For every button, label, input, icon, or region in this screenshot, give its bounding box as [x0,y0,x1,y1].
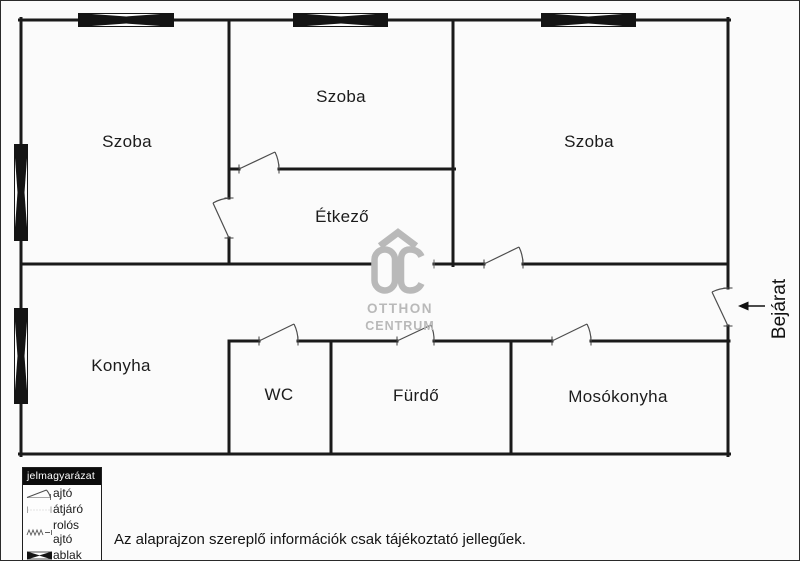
passage-icon [376,260,434,269]
roof-chevron-icon [380,233,416,247]
legend-item-roller-door: rolós ajtó [23,517,101,547]
room-label-szoba-middle: Szoba [316,87,366,107]
window-icon [14,308,28,404]
room-label-szoba-left: Szoba [102,132,152,152]
legend-title: jelmagyarázat [23,468,101,485]
legend-item-window: ablak [23,547,101,561]
legend-item-door: ajtó [23,485,101,501]
floorplan-drawing: OTTHON CENTRUM [1,1,800,561]
logo-line1: OTTHON [367,301,433,316]
door-swing-icon [239,152,279,169]
room-label-konyha: Konyha [91,356,150,376]
floorplan-canvas: OTTHON CENTRUM Szoba Szoba Szoba Étkező … [0,0,800,561]
door-swings [213,152,728,341]
legend-box: jelmagyarázat ajtó átjáró rolós ajtó [22,467,102,561]
door-jamb-ticks [225,165,733,346]
door-swing-icon [26,487,53,500]
door-swing-icon [712,288,728,326]
roller-door-icon [26,526,53,539]
room-label-etkezo: Étkező [315,207,369,227]
door-swing-icon [259,324,298,341]
legend-item-passage: átjáró [23,501,101,517]
door-swing-icon [213,198,229,238]
window-icon [541,13,636,27]
legend-label-door: ajtó [53,486,72,500]
oc-monogram-icon [375,250,422,291]
window-icon [78,13,174,27]
passage-icon [26,503,53,516]
room-label-furdo: Fürdő [393,386,439,406]
room-label-wc: WC [265,385,294,405]
disclaimer-text: Az alaprajzon szereplő információk csak … [114,531,526,548]
room-label-szoba-right: Szoba [564,132,614,152]
window-icon [293,13,388,27]
legend-label-roller-door: rolós ajtó [53,518,99,546]
door-swing-icon [552,324,591,341]
otthon-centrum-logo: OTTHON CENTRUM [365,233,435,334]
logo-line2: CENTRUM [365,319,435,333]
window-icon [14,144,28,241]
door-swing-icon [484,247,523,264]
window-icon [26,549,53,561]
room-label-mosokonyha: Mosókonyha [568,387,667,407]
entrance-arrow-icon [738,302,765,311]
entrance-label: Bejárat [769,279,791,339]
legend-label-window: ablak [53,548,82,561]
legend-label-passage: átjáró [53,502,83,516]
